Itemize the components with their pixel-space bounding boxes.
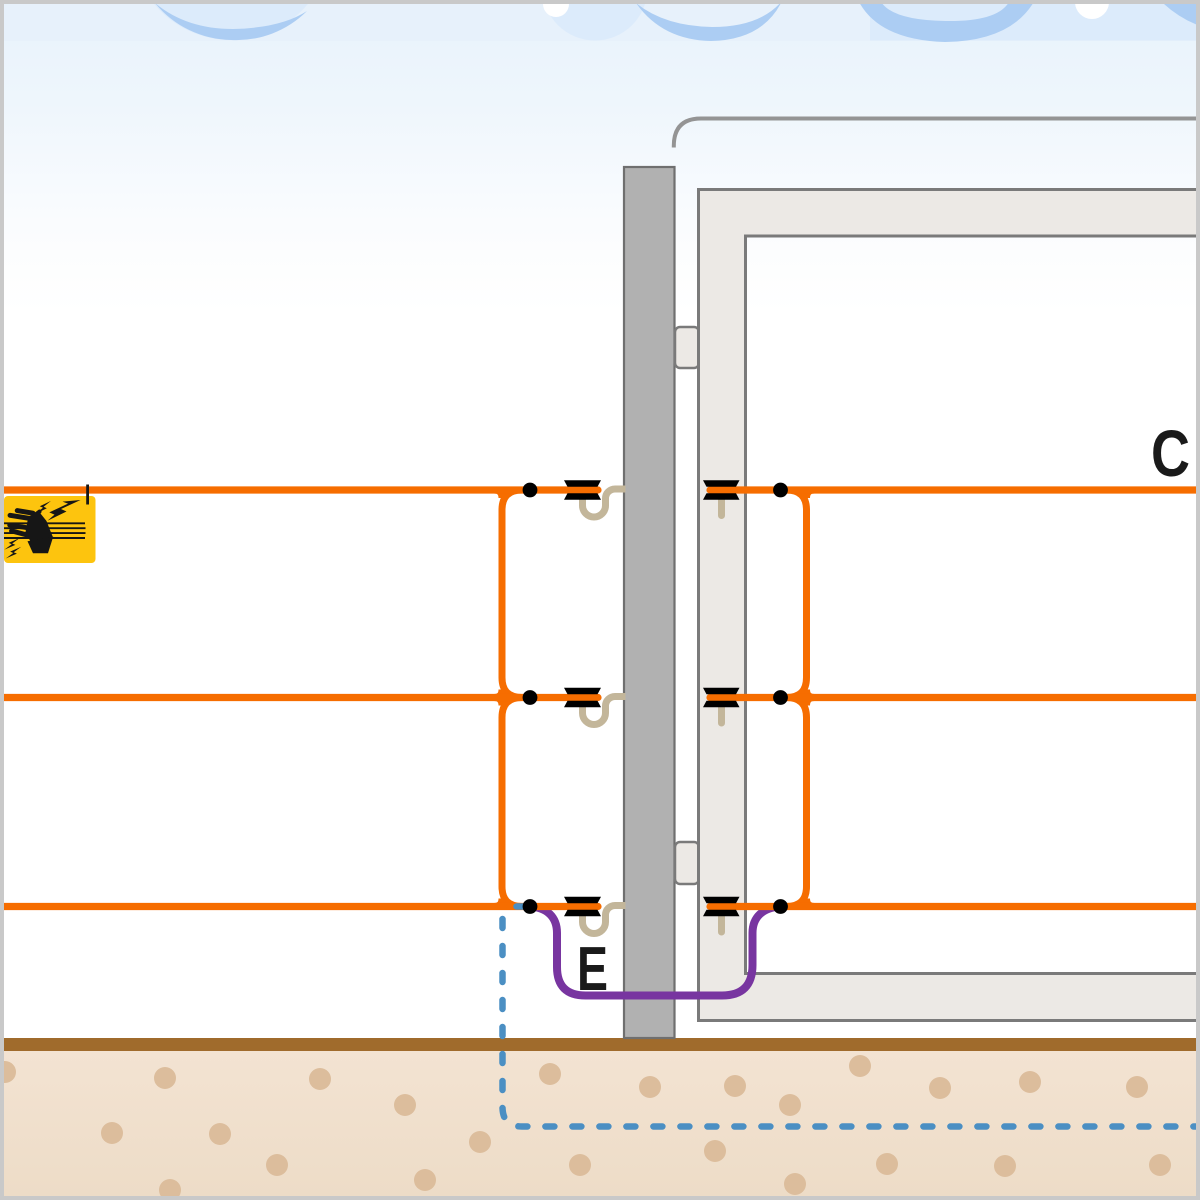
- svg-text:C: C: [1151, 416, 1190, 490]
- svg-text:E: E: [577, 935, 608, 1004]
